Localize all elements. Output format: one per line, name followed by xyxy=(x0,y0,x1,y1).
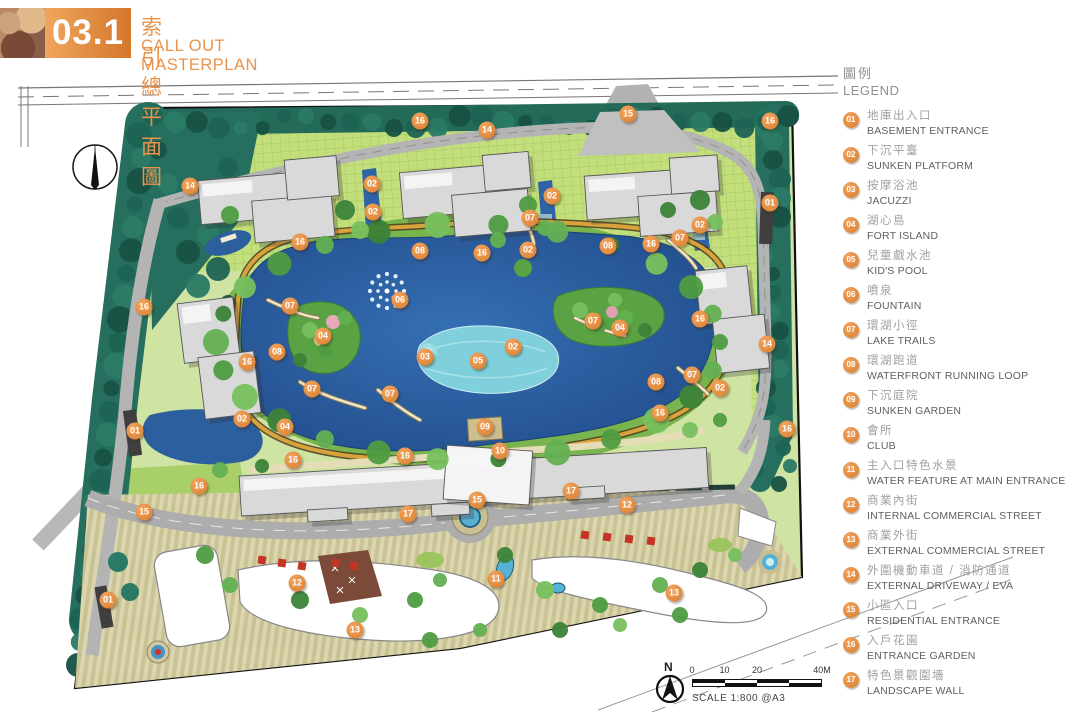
legend-label-en: EXTERNAL DRIVEWAY / EVA xyxy=(867,580,1013,593)
legend-label-en: EXTERNAL COMMERCIAL STREET xyxy=(867,545,1045,558)
legend-items: 01地庫出入口BASEMENT ENTRANCE02下沉平臺SUNKEN PLA… xyxy=(843,110,1079,705)
callout-marker-04: 04 xyxy=(612,320,629,337)
callout-marker-16: 16 xyxy=(474,245,491,262)
callout-marker-17: 17 xyxy=(563,483,580,500)
callout-marker-01: 01 xyxy=(127,423,144,440)
legend-label-en: WATER FEATURE AT MAIN ENTRANCE xyxy=(867,475,1066,488)
legend-label-en: ENTRANCE GARDEN xyxy=(867,650,976,663)
legend-number-badge: 14 xyxy=(843,567,859,583)
legend-number-badge: 01 xyxy=(843,112,859,128)
callout-marker-16: 16 xyxy=(285,452,302,469)
callout-marker-07: 07 xyxy=(522,210,539,227)
legend-item-17: 17特色景觀圍墻LANDSCAPE WALL xyxy=(843,670,1079,705)
legend-item-16: 16入戶花園ENTRANCE GARDEN xyxy=(843,635,1079,670)
callout-marker-16: 16 xyxy=(239,354,256,371)
legend-label-zh: 特色景觀圍墻 xyxy=(867,670,965,683)
legend-label-en: LANDSCAPE WALL xyxy=(867,685,965,698)
legend-item-15: 15小區入口RESIDENTIAL ENTRANCE xyxy=(843,600,1079,635)
callout-marker-16: 16 xyxy=(643,236,660,253)
callout-marker-16: 16 xyxy=(692,311,709,328)
callout-marker-02: 02 xyxy=(505,339,522,356)
legend-label-zh: 入戶花園 xyxy=(867,635,976,648)
legend-label-zh: 商業外街 xyxy=(867,530,1045,543)
callout-marker-15: 15 xyxy=(136,504,153,521)
legend-label-zh: 小區入口 xyxy=(867,600,1000,613)
callout-marker-16: 16 xyxy=(292,234,309,251)
callout-marker-14: 14 xyxy=(759,336,776,353)
scale-ticks: 0102040M xyxy=(692,665,822,676)
scale-tick: 0 xyxy=(689,665,694,675)
legend-label-en: WATERFRONT RUNNING LOOP xyxy=(867,370,1028,383)
legend-label-zh: 兒童戲水池 xyxy=(867,250,932,263)
legend-number-badge: 15 xyxy=(843,602,859,618)
callout-marker-16: 16 xyxy=(652,405,669,422)
callout-marker-07: 07 xyxy=(304,381,321,398)
callout-marker-12: 12 xyxy=(619,497,636,514)
legend-item-08: 08環湖跑道WATERFRONT RUNNING LOOP xyxy=(843,355,1079,390)
legend-number-badge: 03 xyxy=(843,182,859,198)
legend-item-06: 06噴泉FOUNTAIN xyxy=(843,285,1079,320)
legend-item-03: 03按摩浴池JACUZZI xyxy=(843,180,1079,215)
callout-marker-13: 13 xyxy=(666,585,683,602)
legend-label-en: INTERNAL COMMERCIAL STREET xyxy=(867,510,1042,523)
legend-label-en: FOUNTAIN xyxy=(867,300,922,313)
legend-number-badge: 13 xyxy=(843,532,859,548)
legend-label-zh: 環湖跑道 xyxy=(867,355,1028,368)
callout-marker-02: 02 xyxy=(365,204,382,221)
legend-item-14: 14外圍機動車道 / 消防通道EXTERNAL DRIVEWAY / EVA xyxy=(843,565,1079,600)
legend-label-zh: 湖心島 xyxy=(867,215,938,228)
legend-label-zh: 會所 xyxy=(867,425,896,438)
legend-label-en: SUNKEN GARDEN xyxy=(867,405,961,418)
callout-marker-14: 14 xyxy=(479,122,496,139)
callout-marker-16: 16 xyxy=(136,299,153,316)
legend-label-en: KID'S POOL xyxy=(867,265,932,278)
scale-tick: 40M xyxy=(813,665,831,675)
scale-bar-group: N 0102040M SCALE 1:800 @A3 xyxy=(655,660,870,710)
callout-marker-08: 08 xyxy=(412,243,429,260)
legend-number-badge: 16 xyxy=(843,637,859,653)
scale-text: SCALE 1:800 @A3 xyxy=(692,693,785,704)
legend-label-zh: 按摩浴池 xyxy=(867,180,919,193)
callout-marker-08: 08 xyxy=(648,374,665,391)
callout-marker-16: 16 xyxy=(779,421,796,438)
legend-number-badge: 12 xyxy=(843,497,859,513)
callout-marker-02: 02 xyxy=(712,380,729,397)
legend-label-en: FORT ISLAND xyxy=(867,230,938,243)
callout-marker-03: 03 xyxy=(417,349,434,366)
compass-icon xyxy=(73,145,117,190)
north-arrow-icon xyxy=(655,673,685,705)
legend-label-zh: 商業內街 xyxy=(867,495,1042,508)
callout-marker-02: 02 xyxy=(234,411,251,428)
callout-marker-01: 01 xyxy=(762,195,779,212)
callout-marker-12: 12 xyxy=(289,575,306,592)
legend-number-badge: 11 xyxy=(843,462,859,478)
legend-title-zh: 圖例 xyxy=(843,63,1079,82)
callout-marker-07: 07 xyxy=(282,298,299,315)
legend-number-badge: 02 xyxy=(843,147,859,163)
callout-marker-02: 02 xyxy=(692,217,709,234)
callout-marker-04: 04 xyxy=(277,419,294,436)
callout-marker-14: 14 xyxy=(182,178,199,195)
scale-tick: 20 xyxy=(752,665,762,675)
callout-marker-04: 04 xyxy=(315,328,332,345)
legend-item-13: 13商業外街EXTERNAL COMMERCIAL STREET xyxy=(843,530,1079,565)
legend-panel: 圖例 LEGEND 01地庫出入口BASEMENT ENTRANCE02下沉平臺… xyxy=(843,63,1079,705)
scale-tick: 10 xyxy=(719,665,729,675)
legend-item-09: 09下沉庭院SUNKEN GARDEN xyxy=(843,390,1079,425)
legend-item-12: 12商業內街INTERNAL COMMERCIAL STREET xyxy=(843,495,1079,530)
header-texture-art xyxy=(0,8,45,58)
page-title-en: CALL OUT MASTERPLAN xyxy=(141,37,258,75)
legend-label-zh: 主入口特色水景 xyxy=(867,460,1066,473)
legend-item-11: 11主入口特色水景WATER FEATURE AT MAIN ENTRANCE xyxy=(843,460,1079,495)
callout-marker-08: 08 xyxy=(600,238,617,255)
legend-number-badge: 05 xyxy=(843,252,859,268)
callout-marker-07: 07 xyxy=(585,313,602,330)
callout-marker-09: 09 xyxy=(477,419,494,436)
callout-marker-07: 07 xyxy=(672,230,689,247)
legend-label-en: BASEMENT ENTRANCE xyxy=(867,125,989,138)
callout-marker-10: 10 xyxy=(492,443,509,460)
callout-marker-15: 15 xyxy=(620,106,637,123)
legend-label-zh: 噴泉 xyxy=(867,285,922,298)
legend-number-badge: 06 xyxy=(843,287,859,303)
callout-marker-02: 02 xyxy=(544,188,561,205)
legend-label-zh: 地庫出入口 xyxy=(867,110,989,123)
legend-label-en: CLUB xyxy=(867,440,896,453)
callout-marker-01: 01 xyxy=(100,592,117,609)
callout-marker-02: 02 xyxy=(364,176,381,193)
legend-item-10: 10會所CLUB xyxy=(843,425,1079,460)
legend-label-zh: 下沉平臺 xyxy=(867,145,973,158)
legend-label-en: SUNKEN PLATFORM xyxy=(867,160,973,173)
callout-marker-05: 05 xyxy=(470,353,487,370)
legend-label-zh: 環湖小徑 xyxy=(867,320,936,333)
legend-label-en: JACUZZI xyxy=(867,195,919,208)
legend-number-badge: 08 xyxy=(843,357,859,373)
callout-marker-08: 08 xyxy=(269,344,286,361)
callout-marker-16: 16 xyxy=(397,448,414,465)
legend-label-en: LAKE TRAILS xyxy=(867,335,936,348)
legend-number-badge: 09 xyxy=(843,392,859,408)
legend-number-badge: 04 xyxy=(843,217,859,233)
legend-number-badge: 07 xyxy=(843,322,859,338)
callout-marker-15: 15 xyxy=(469,492,486,509)
legend-number-badge: 10 xyxy=(843,427,859,443)
legend-item-04: 04湖心島FORT ISLAND xyxy=(843,215,1079,250)
legend-label-zh: 外圍機動車道 / 消防通道 xyxy=(867,565,1013,578)
masterplan-page: 03.1 索引總平面圖 CALL OUT MASTERPLAN 圖例 LEGEN… xyxy=(0,0,1080,712)
legend-item-02: 02下沉平臺SUNKEN PLATFORM xyxy=(843,145,1079,180)
legend-label-en: RESIDENTIAL ENTRANCE xyxy=(867,615,1000,628)
callout-marker-16: 16 xyxy=(762,113,779,130)
section-number-badge: 03.1 xyxy=(45,8,131,58)
legend-title-en: LEGEND xyxy=(843,83,1079,98)
callout-marker-07: 07 xyxy=(382,386,399,403)
callout-marker-13: 13 xyxy=(347,622,364,639)
legend-item-07: 07環湖小徑LAKE TRAILS xyxy=(843,320,1079,355)
legend-item-01: 01地庫出入口BASEMENT ENTRANCE xyxy=(843,110,1079,145)
callout-marker-02: 02 xyxy=(520,242,537,259)
callout-marker-16: 16 xyxy=(412,113,429,130)
callout-marker-17: 17 xyxy=(400,506,417,523)
legend-label-zh: 下沉庭院 xyxy=(867,390,961,403)
legend-item-05: 05兒童戲水池KID'S POOL xyxy=(843,250,1079,285)
north-label: N xyxy=(664,660,673,674)
callout-marker-06: 06 xyxy=(392,292,409,309)
callout-marker-11: 11 xyxy=(488,571,505,588)
callout-marker-07: 07 xyxy=(684,367,701,384)
scale-bar xyxy=(692,679,822,687)
callout-marker-16: 16 xyxy=(191,478,208,495)
